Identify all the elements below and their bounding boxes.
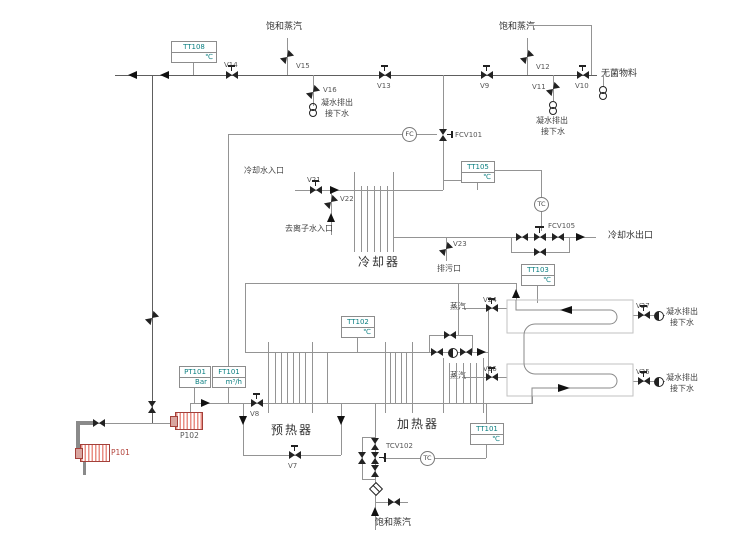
block-valve <box>431 348 443 356</box>
preheater-tube <box>281 352 282 403</box>
heater-tube <box>449 363 450 403</box>
pipe-bypass <box>243 403 244 455</box>
signal-line <box>416 134 437 135</box>
preheater-tube <box>305 352 306 403</box>
check-valve <box>148 401 156 413</box>
controller-tc: TC <box>420 451 435 466</box>
valve-v10 <box>577 71 589 79</box>
signal-line <box>228 134 403 135</box>
instrument-unit: ℃ <box>342 328 374 337</box>
control-valve-tcv102 <box>371 452 379 464</box>
pipe-steam-loop <box>591 25 592 75</box>
steam-trap-icon <box>654 311 664 321</box>
stream-label-sterile-material: 无菌物料 <box>601 69 637 79</box>
stream-label-steam: 蒸汽 <box>450 302 466 312</box>
instrument-tag: FT101 <box>213 367 245 378</box>
strainer-icon <box>369 482 383 496</box>
instrument-tt101: TT101 ℃ <box>470 423 504 445</box>
instrument-unit: ℃ <box>462 173 494 182</box>
pipe-cooling-water-out <box>393 237 596 238</box>
block-valve <box>552 233 564 241</box>
control-valve-label: FCV105 <box>548 222 575 230</box>
stream-label-di-water: 去离子水入口 <box>285 224 333 234</box>
stream-label-drain-port: 排污口 <box>437 264 461 274</box>
pipe-bypass <box>362 479 375 480</box>
control-valve-label: TCV102 <box>386 442 413 450</box>
instrument-unit: ℃ <box>172 53 216 62</box>
valve-v22 <box>324 195 338 209</box>
heater-tube <box>483 358 484 413</box>
stream-label-cooling-water-out: 冷却水出口 <box>608 231 653 241</box>
pipe-bypass <box>511 237 512 253</box>
instrument-tt102: TT102 ℃ <box>341 316 375 338</box>
valve-label: V13 <box>377 82 391 90</box>
pid-diagram: 无菌物料 TT108 ℃ V14 V13 V9 V10 饱和蒸汽 V15 V16… <box>0 0 741 537</box>
pump-p101-cap <box>75 448 83 459</box>
cooler-tube <box>367 186 368 252</box>
valve-label: V23 <box>453 240 467 248</box>
stream-label-saturated-steam: 饱和蒸汽 <box>375 518 411 528</box>
flow-arrow-up-icon <box>327 213 335 222</box>
stream-label-condensate: 接下水 <box>325 109 349 119</box>
instrument-tag: TT102 <box>342 317 374 328</box>
flow-arrow-right-icon <box>201 399 210 407</box>
valve-v27 <box>638 311 650 319</box>
equipment-label-heater: 加热器 <box>397 415 439 432</box>
block-valve <box>516 233 528 241</box>
pipe-thick <box>83 460 86 475</box>
heater-tube <box>390 352 391 403</box>
cooler-tube <box>387 186 388 252</box>
pipe-product-line <box>190 403 532 404</box>
heater-tube <box>476 363 477 403</box>
pipe-bypass <box>569 237 570 253</box>
instrument-tt105: TT105 ℃ <box>461 161 495 183</box>
flow-arrow-up-icon <box>371 507 379 516</box>
cooler-tube <box>393 172 394 252</box>
valve-v12 <box>520 50 534 64</box>
recirc-valve <box>145 311 159 325</box>
steam-trap-icon <box>448 348 458 358</box>
pipe-bypass <box>429 335 430 352</box>
pipe-hot-return <box>245 283 516 284</box>
flow-arrow-right-icon <box>330 186 339 194</box>
stream-label-condensate: 接下水 <box>541 127 565 137</box>
pump-p101 <box>80 444 110 462</box>
valve-v24 <box>486 304 498 312</box>
valve-v8 <box>251 399 263 407</box>
pipe-product-riser <box>443 141 444 190</box>
pump-p102 <box>175 412 203 430</box>
stream-label-saturated-steam: 饱和蒸汽 <box>266 22 302 32</box>
instrument-tt103: TT103 ℃ <box>521 264 555 286</box>
holding-tube-assembly <box>495 283 670 410</box>
instrument-ft101: FT101 m³/h <box>212 366 246 388</box>
equipment-label-preheater: 预热器 <box>271 421 313 438</box>
stream-label-condensate: 凝水排出 <box>666 307 698 317</box>
pump-label-p101: P101 <box>111 448 130 457</box>
signal-line <box>493 170 541 171</box>
pipe-bypass <box>472 335 473 352</box>
instrument-stem <box>486 403 487 423</box>
pump-label-p102: P102 <box>180 431 199 440</box>
instrument-unit: m³/h <box>213 378 245 387</box>
signal-line <box>228 134 229 366</box>
valve-v21 <box>310 186 322 194</box>
valve-label: V10 <box>575 82 589 90</box>
stream-label-condensate: 凝水排出 <box>321 98 353 108</box>
preheater-tube <box>287 352 288 403</box>
bypass-valve <box>444 331 456 339</box>
preheater-tube <box>275 352 276 403</box>
pump-p102-cap <box>170 416 178 427</box>
stream-label-condensate: 凝水排出 <box>536 116 568 126</box>
cooler-tube <box>361 186 362 252</box>
block-valve <box>371 438 379 450</box>
heater-tube <box>470 363 471 403</box>
signal-line <box>383 458 420 459</box>
pipe-segment <box>190 403 191 412</box>
stream-label-condensate: 接下水 <box>670 318 694 328</box>
pipe-pump-suction <box>93 423 176 424</box>
valve-v7 <box>289 451 301 459</box>
signal-line <box>541 211 542 231</box>
valve-label: V9 <box>480 82 489 90</box>
flow-arrow-left-icon <box>160 71 169 79</box>
preheater-tube <box>299 352 300 403</box>
instrument-unit: ℃ <box>471 435 503 444</box>
bypass-valve <box>358 452 366 464</box>
heater-tube <box>401 352 402 403</box>
flow-arrow-right-icon <box>558 384 570 392</box>
instrument-tag: TT108 <box>172 42 216 53</box>
pump-discharge-valve <box>93 419 105 427</box>
control-valve-fcv101 <box>439 129 447 141</box>
instrument-tag: TT101 <box>471 424 503 435</box>
flow-arrow-left-icon <box>128 71 137 79</box>
valve-label: V7 <box>288 462 297 470</box>
pipe-bypass <box>341 403 342 455</box>
valve-v16 <box>306 85 320 99</box>
flow-arrow-down-icon <box>239 416 247 425</box>
valve-v23 <box>439 242 453 256</box>
stream-label-condensate: 接下水 <box>670 384 694 394</box>
pipe-product-riser <box>443 75 444 129</box>
instrument-tag: TT105 <box>462 162 494 173</box>
control-valve-fcv105 <box>534 233 546 241</box>
block-valve <box>371 465 379 477</box>
instrument-stem <box>193 63 194 75</box>
heater-tube <box>443 358 444 413</box>
instrument-unit: Bar <box>180 378 210 387</box>
heater-tube <box>395 352 396 403</box>
cooler-tube <box>354 172 355 252</box>
valve-v15 <box>280 50 294 64</box>
valve-v25 <box>638 377 650 385</box>
stream-label-saturated-steam: 饱和蒸汽 <box>499 22 535 32</box>
controller-tc: TC <box>534 197 549 212</box>
flow-arrow-up-icon <box>512 289 520 298</box>
flow-arrow-down-icon <box>337 416 345 425</box>
valve-label: V15 <box>296 62 310 70</box>
signal-line <box>434 458 486 459</box>
valve-v9 <box>481 71 493 79</box>
heater-tube <box>406 352 407 403</box>
valve-v13 <box>379 71 391 79</box>
cooler-tube <box>380 186 381 252</box>
stream-label-cooling-water-in: 冷却水入口 <box>244 166 284 176</box>
steam-trap-icon <box>549 101 557 115</box>
pipe-recirculation <box>152 75 153 423</box>
valve-label: V8 <box>250 410 259 418</box>
flow-arrow-left-icon <box>560 306 572 314</box>
preheater-tube <box>293 352 294 403</box>
bypass-valve <box>534 248 546 256</box>
control-valve-label: FCV101 <box>455 131 482 139</box>
valve-v26 <box>486 373 498 381</box>
controller-fc: FC <box>402 127 417 142</box>
flow-arrow-right-icon <box>477 348 486 356</box>
steam-trap-icon <box>309 103 317 117</box>
instrument-tag: TT103 <box>522 265 554 276</box>
equipment-label-cooler: 冷却器 <box>358 253 400 270</box>
flow-arrow-right-icon <box>576 233 585 241</box>
cooler-tube <box>374 186 375 252</box>
instrument-tt108: TT108 ℃ <box>171 41 217 63</box>
valve-label: V12 <box>536 63 550 71</box>
valve-label: V16 <box>323 86 337 94</box>
instrument-unit: ℃ <box>522 276 554 285</box>
heater-tube <box>463 363 464 403</box>
steam-trap-icon <box>654 377 664 387</box>
valve-v11 <box>546 82 560 96</box>
valve-label: V11 <box>532 83 546 91</box>
signal-line <box>541 170 542 197</box>
heater-tube <box>456 363 457 403</box>
block-valve <box>460 348 472 356</box>
steam-trap-icon <box>599 86 607 100</box>
pipe-hot-return <box>245 283 246 352</box>
stream-label-condensate: 凝水排出 <box>666 373 698 383</box>
drain-valve <box>388 498 400 506</box>
pipe-steam-loop <box>527 25 591 26</box>
instrument-pt101: PT101 Bar <box>179 366 211 388</box>
instrument-tag: PT101 <box>180 367 210 378</box>
valve-label: V22 <box>340 195 354 203</box>
valve-v14 <box>226 71 238 79</box>
pipe-segment <box>327 352 328 403</box>
pipe-main-header <box>115 75 597 76</box>
